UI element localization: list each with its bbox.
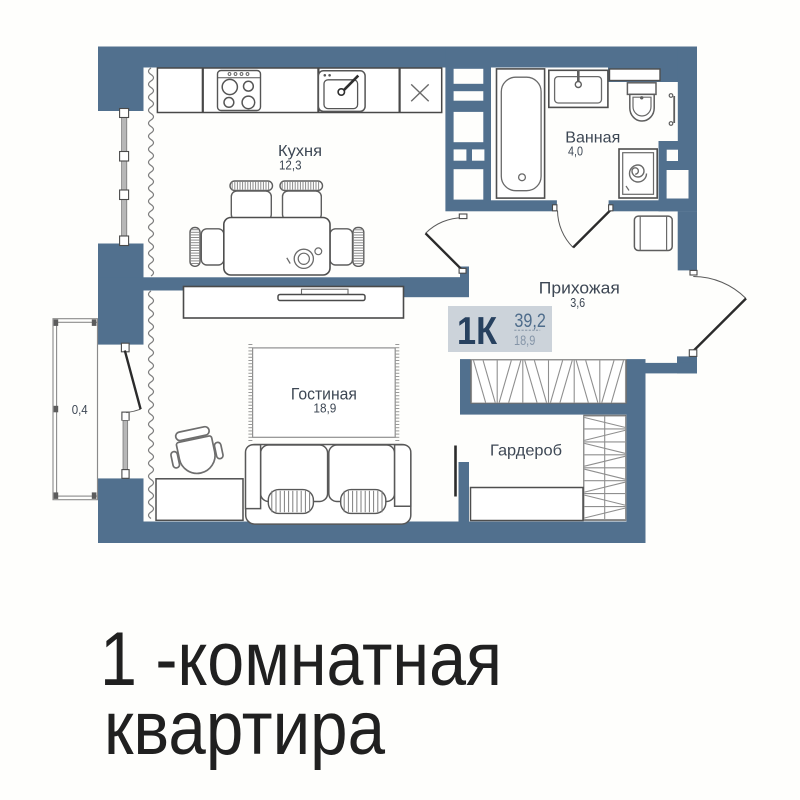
svg-text:12,3: 12,3 bbox=[279, 158, 302, 173]
svg-text:4,0: 4,0 bbox=[568, 144, 583, 159]
svg-text:39,2: 39,2 bbox=[514, 310, 546, 332]
svg-text:Гардероб: Гардероб bbox=[490, 443, 562, 460]
svg-text:1К: 1К bbox=[457, 310, 497, 353]
svg-text:3,6: 3,6 bbox=[570, 295, 585, 310]
svg-text:квартира: квартира bbox=[104, 686, 386, 771]
svg-text:0,4: 0,4 bbox=[72, 402, 88, 417]
svg-text:18,9: 18,9 bbox=[514, 333, 535, 348]
svg-text:18,9: 18,9 bbox=[313, 401, 336, 416]
